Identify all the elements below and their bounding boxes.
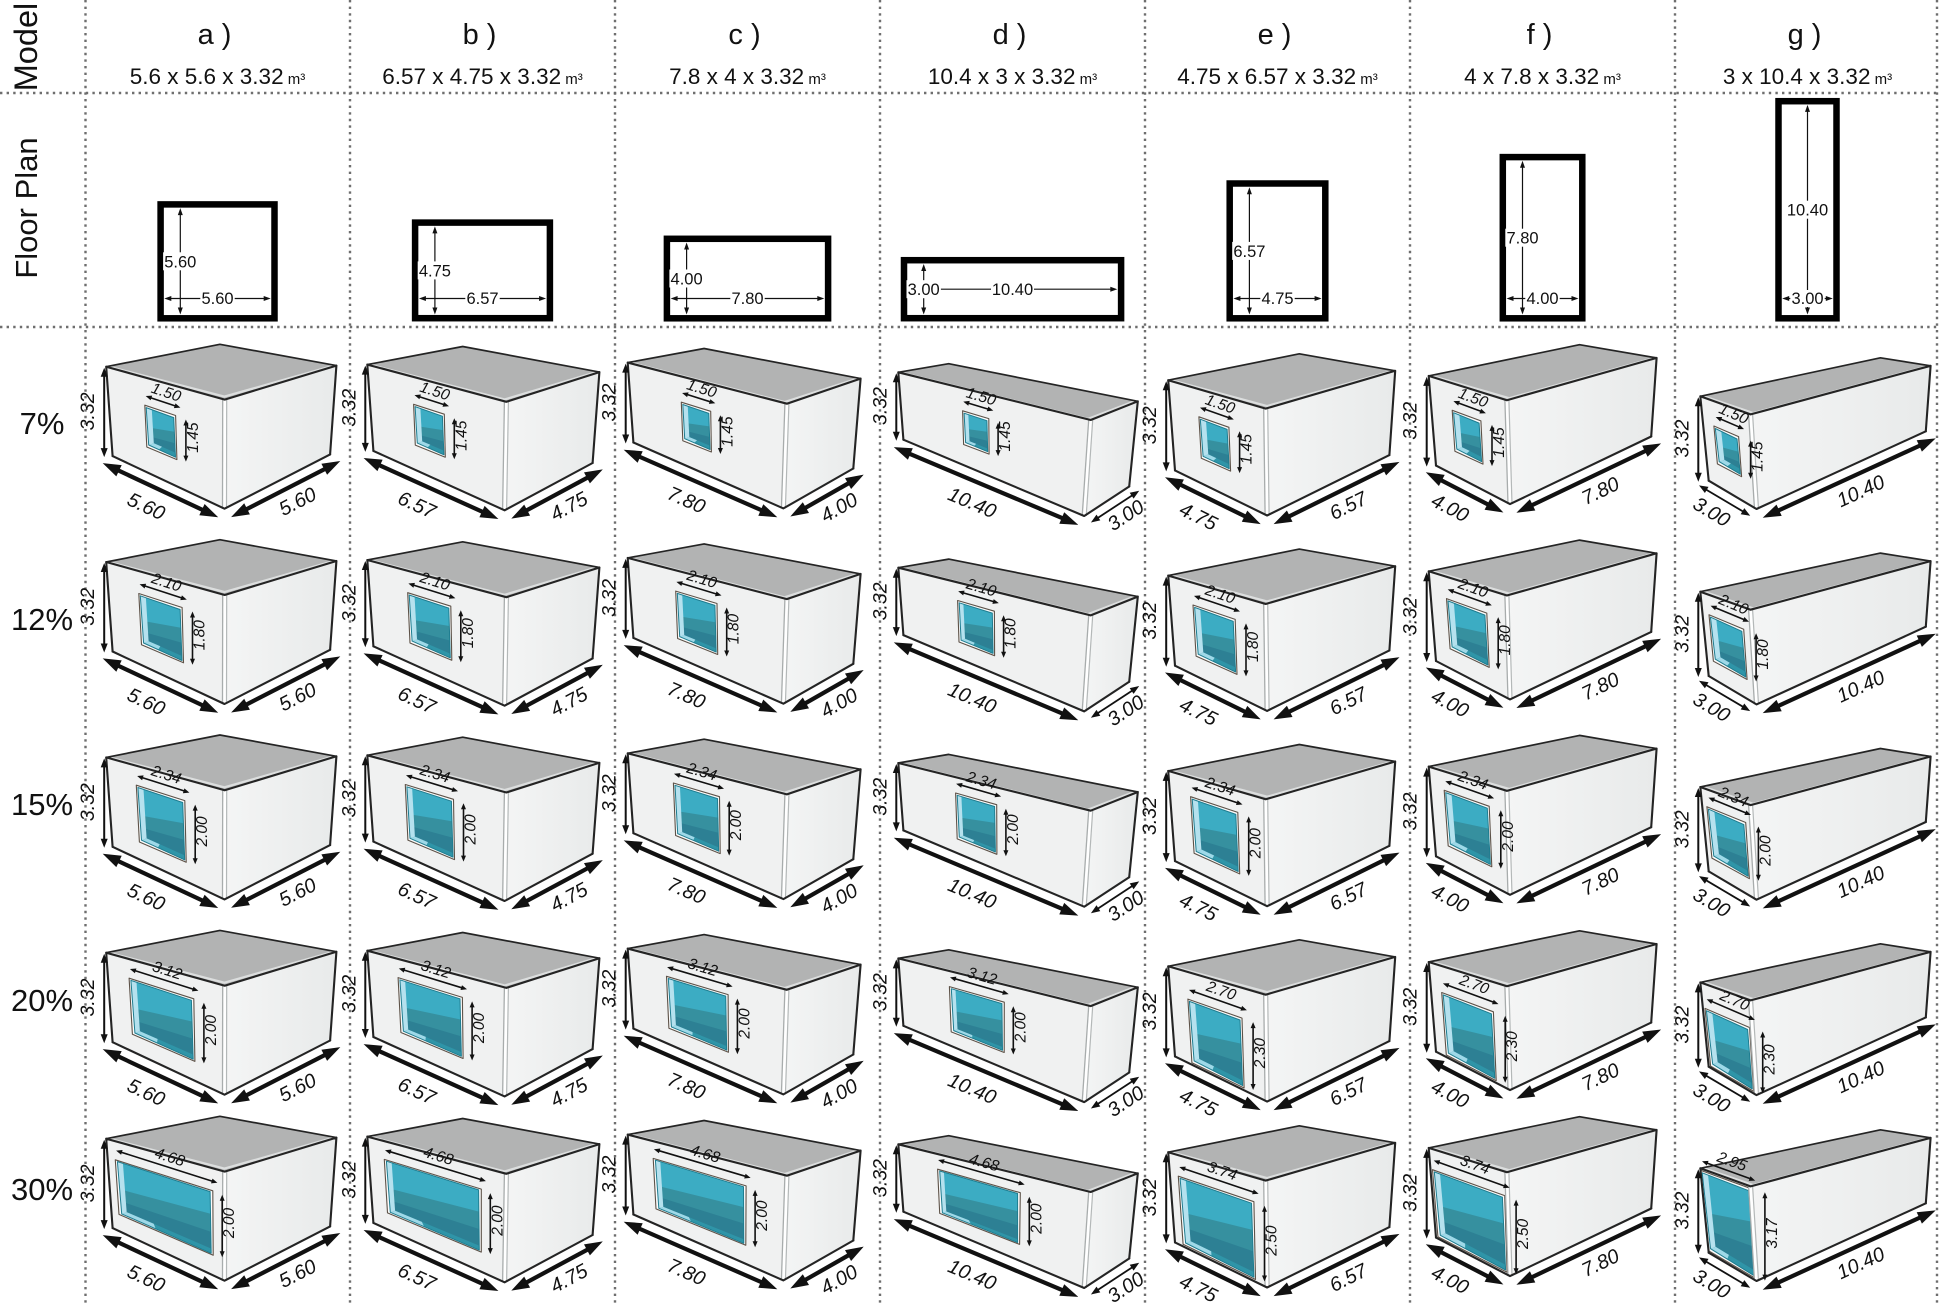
svg-text:3.32: 3.32 bbox=[869, 387, 891, 425]
svg-text:3.32: 3.32 bbox=[1400, 1174, 1422, 1212]
svg-text:2.00: 2.00 bbox=[728, 810, 745, 842]
svg-text:1.45: 1.45 bbox=[1491, 427, 1508, 458]
svg-text:12%: 12% bbox=[11, 602, 73, 637]
svg-text:3.32: 3.32 bbox=[1671, 1191, 1693, 1229]
svg-text:2.30: 2.30 bbox=[1762, 1044, 1779, 1076]
svg-text:3.32: 3.32 bbox=[1139, 992, 1161, 1030]
svg-text:2.00: 2.00 bbox=[1500, 821, 1517, 853]
svg-text:10.40: 10.40 bbox=[992, 281, 1033, 299]
svg-text:1.80: 1.80 bbox=[1003, 618, 1020, 649]
svg-text:3.32: 3.32 bbox=[599, 969, 621, 1007]
svg-text:3.32: 3.32 bbox=[1671, 615, 1693, 653]
svg-text:5.60: 5.60 bbox=[201, 290, 233, 308]
svg-text:3.32: 3.32 bbox=[77, 783, 99, 821]
svg-text:1.45: 1.45 bbox=[185, 422, 202, 453]
svg-text:20%: 20% bbox=[11, 983, 73, 1018]
svg-text:1.80: 1.80 bbox=[192, 620, 209, 651]
svg-text:3.32: 3.32 bbox=[338, 584, 360, 622]
svg-text:1.80: 1.80 bbox=[460, 618, 477, 649]
svg-text:3 x 10.4 x 3.32 m³: 3 x 10.4 x 3.32 m³ bbox=[1723, 64, 1892, 89]
svg-text:1.80: 1.80 bbox=[726, 614, 743, 645]
svg-text:6.57: 6.57 bbox=[466, 290, 498, 308]
svg-text:2.00: 2.00 bbox=[1028, 1203, 1045, 1235]
svg-text:7.8 x 4 x 3.32 m³: 7.8 x 4 x 3.32 m³ bbox=[669, 64, 826, 89]
svg-text:3.32: 3.32 bbox=[338, 389, 360, 427]
svg-text:2.00: 2.00 bbox=[194, 816, 211, 848]
svg-text:10.4 x 3 x 3.32 m³: 10.4 x 3 x 3.32 m³ bbox=[928, 64, 1097, 89]
svg-text:2.50: 2.50 bbox=[1264, 1225, 1281, 1257]
svg-text:1.45: 1.45 bbox=[453, 420, 470, 451]
svg-text:3.32: 3.32 bbox=[338, 975, 360, 1013]
svg-text:Floor Plan: Floor Plan bbox=[9, 137, 44, 278]
svg-text:7.80: 7.80 bbox=[731, 290, 763, 308]
svg-text:2.00: 2.00 bbox=[1012, 1012, 1029, 1044]
svg-text:10.40: 10.40 bbox=[1787, 202, 1828, 220]
svg-text:3.32: 3.32 bbox=[1139, 797, 1161, 835]
svg-text:2.30: 2.30 bbox=[1252, 1038, 1269, 1070]
svg-text:3.32: 3.32 bbox=[869, 973, 891, 1011]
svg-text:a ): a ) bbox=[198, 19, 232, 51]
svg-text:3.32: 3.32 bbox=[599, 774, 621, 812]
svg-text:2.50: 2.50 bbox=[1515, 1218, 1532, 1250]
svg-text:f ): f ) bbox=[1527, 19, 1553, 51]
svg-text:3.32: 3.32 bbox=[1400, 597, 1422, 635]
svg-text:6.57 x 4.75 x 3.32 m³: 6.57 x 4.75 x 3.32 m³ bbox=[382, 64, 583, 89]
svg-text:3.32: 3.32 bbox=[1400, 402, 1422, 440]
svg-text:3.00: 3.00 bbox=[908, 281, 940, 299]
svg-text:3.32: 3.32 bbox=[599, 579, 621, 617]
svg-text:1.80: 1.80 bbox=[1755, 639, 1772, 670]
svg-text:5.60: 5.60 bbox=[164, 253, 196, 271]
svg-text:3.32: 3.32 bbox=[599, 1155, 621, 1193]
svg-text:1.45: 1.45 bbox=[997, 421, 1014, 452]
svg-text:3.32: 3.32 bbox=[869, 1159, 891, 1197]
svg-text:3.32: 3.32 bbox=[77, 978, 99, 1016]
svg-text:7%: 7% bbox=[20, 406, 65, 441]
svg-text:3.32: 3.32 bbox=[599, 383, 621, 421]
svg-text:1.45: 1.45 bbox=[719, 416, 736, 447]
svg-text:1.45: 1.45 bbox=[1750, 441, 1767, 472]
svg-text:5.6 x 5.6 x 3.32 m³: 5.6 x 5.6 x 3.32 m³ bbox=[130, 64, 306, 89]
svg-text:3.32: 3.32 bbox=[869, 582, 891, 620]
svg-text:2.00: 2.00 bbox=[221, 1208, 238, 1240]
svg-text:4.75: 4.75 bbox=[1261, 290, 1293, 308]
svg-text:3.32: 3.32 bbox=[1671, 419, 1693, 457]
svg-text:4 x 7.8 x 3.32 m³: 4 x 7.8 x 3.32 m³ bbox=[1464, 64, 1621, 89]
svg-text:e ): e ) bbox=[1258, 19, 1292, 51]
svg-text:3.32: 3.32 bbox=[77, 392, 99, 430]
svg-text:3.32: 3.32 bbox=[1400, 988, 1422, 1026]
svg-text:2.00: 2.00 bbox=[471, 1013, 488, 1045]
svg-text:4.75: 4.75 bbox=[419, 262, 451, 280]
svg-text:3.32: 3.32 bbox=[77, 1164, 99, 1202]
svg-text:3.17: 3.17 bbox=[1764, 1217, 1781, 1249]
svg-text:3.32: 3.32 bbox=[1671, 1005, 1693, 1043]
svg-text:c ): c ) bbox=[728, 19, 760, 51]
svg-text:1.45: 1.45 bbox=[1239, 434, 1256, 465]
svg-text:g ): g ) bbox=[1788, 19, 1822, 51]
svg-text:1.80: 1.80 bbox=[1497, 625, 1514, 656]
svg-text:3.32: 3.32 bbox=[869, 778, 891, 816]
svg-text:4.00: 4.00 bbox=[671, 271, 703, 289]
svg-text:3.32: 3.32 bbox=[1139, 1178, 1161, 1216]
svg-text:2.00: 2.00 bbox=[1248, 828, 1265, 860]
svg-text:6.57: 6.57 bbox=[1233, 243, 1265, 261]
svg-text:1.80: 1.80 bbox=[1245, 631, 1262, 662]
svg-text:3.32: 3.32 bbox=[1400, 792, 1422, 830]
svg-text:2.30: 2.30 bbox=[1504, 1031, 1521, 1063]
svg-text:3.32: 3.32 bbox=[1139, 602, 1161, 640]
svg-text:15%: 15% bbox=[11, 787, 73, 822]
svg-text:4.75 x 6.57 x 3.32 m³: 4.75 x 6.57 x 3.32 m³ bbox=[1177, 64, 1378, 89]
svg-text:3.00: 3.00 bbox=[1791, 290, 1823, 308]
svg-text:7.80: 7.80 bbox=[1506, 230, 1538, 248]
svg-text:2.00: 2.00 bbox=[489, 1205, 506, 1237]
svg-text:Model: Model bbox=[8, 3, 44, 92]
svg-text:2.00: 2.00 bbox=[463, 814, 480, 846]
svg-text:3.32: 3.32 bbox=[338, 779, 360, 817]
svg-text:2.00: 2.00 bbox=[1757, 835, 1774, 867]
svg-text:d ): d ) bbox=[993, 19, 1027, 51]
svg-text:3.32: 3.32 bbox=[1671, 810, 1693, 848]
svg-text:30%: 30% bbox=[11, 1172, 73, 1207]
svg-text:b ): b ) bbox=[463, 19, 497, 51]
svg-text:2.00: 2.00 bbox=[754, 1200, 771, 1232]
svg-text:2.00: 2.00 bbox=[1005, 814, 1022, 846]
svg-text:2.00: 2.00 bbox=[203, 1015, 220, 1047]
svg-text:2.00: 2.00 bbox=[736, 1008, 753, 1040]
svg-text:3.32: 3.32 bbox=[1139, 406, 1161, 444]
svg-text:3.32: 3.32 bbox=[338, 1161, 360, 1199]
svg-text:3.32: 3.32 bbox=[77, 588, 99, 626]
svg-text:4.00: 4.00 bbox=[1526, 290, 1558, 308]
